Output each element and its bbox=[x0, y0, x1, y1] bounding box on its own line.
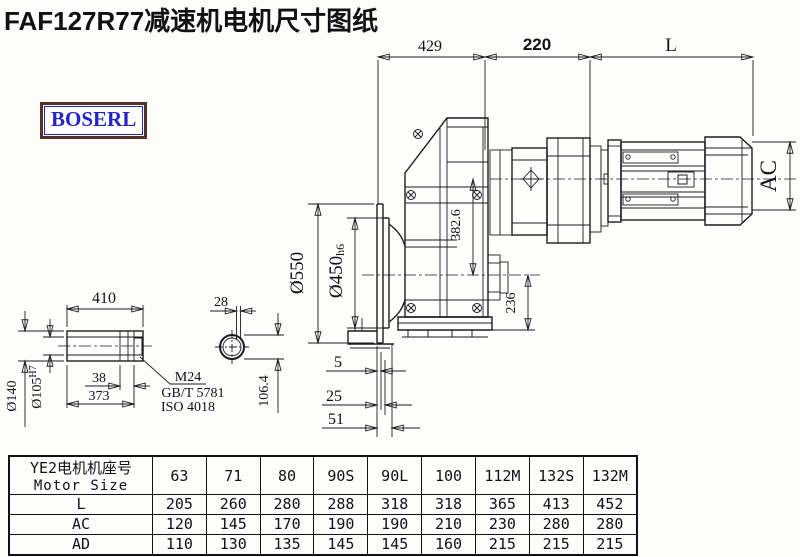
table-cell: 288 bbox=[314, 495, 368, 515]
table-cell: 160 bbox=[422, 534, 476, 555]
header-cn: YE2电机机座号 bbox=[10, 457, 152, 478]
table-cell: 80 bbox=[260, 456, 314, 495]
dim-220: 220 bbox=[523, 35, 551, 54]
table-cell: 452 bbox=[583, 495, 637, 515]
table-cell: 260 bbox=[206, 495, 260, 515]
table-cell: 190 bbox=[368, 514, 422, 534]
table-row: AC 120 145 170 190 190 210 230 280 280 bbox=[9, 514, 637, 534]
dim-flange-diameters: Ø550 Ø450h6 bbox=[287, 204, 386, 343]
table-cell: 90L bbox=[368, 456, 422, 495]
row-label: L bbox=[9, 495, 153, 515]
svg-text:Ø140: Ø140 bbox=[5, 380, 20, 411]
svg-text:38: 38 bbox=[92, 371, 106, 386]
table-row: AD 110 130 135 145 145 160 215 215 215 bbox=[9, 534, 637, 555]
svg-text:GB/T 5781: GB/T 5781 bbox=[161, 386, 224, 401]
table-row: L 205 260 280 288 318 318 365 413 452 bbox=[9, 495, 637, 515]
dim-AC: AC bbox=[752, 142, 796, 210]
table-cell: 170 bbox=[260, 514, 314, 534]
dim-L: L bbox=[665, 35, 677, 56]
svg-text:410: 410 bbox=[92, 290, 116, 307]
table-cell: 71 bbox=[206, 456, 260, 495]
table-cell: 413 bbox=[529, 495, 583, 515]
svg-text:25: 25 bbox=[326, 388, 342, 405]
table-cell: 215 bbox=[475, 534, 529, 555]
table-cell: 215 bbox=[583, 534, 637, 555]
svg-text:ISO 4018: ISO 4018 bbox=[161, 400, 215, 415]
table-cell: 215 bbox=[529, 534, 583, 555]
table-cell: 132M bbox=[583, 456, 637, 495]
table-cell: 210 bbox=[422, 514, 476, 534]
svg-text:Ø550: Ø550 bbox=[287, 252, 308, 294]
table-cell: 145 bbox=[206, 514, 260, 534]
r77-gear-stage bbox=[490, 138, 608, 243]
brand-logo-text: BOSERL bbox=[44, 106, 143, 135]
svg-text:236: 236 bbox=[504, 293, 519, 314]
table-cell: 145 bbox=[368, 534, 422, 555]
hollow-shaft-detail: 410 38 373 M24 GB/T 5781 ISO 4018 Ø140 bbox=[5, 290, 225, 427]
technical-drawing: 429 220 L bbox=[0, 0, 800, 455]
table-cell: 100 bbox=[422, 456, 476, 495]
table-cell: 205 bbox=[153, 495, 207, 515]
table-cell: 120 bbox=[153, 514, 207, 534]
table-header-row: YE2电机机座号 Motor Size 63 71 80 90S 90L 100… bbox=[9, 456, 637, 495]
motor-size-table: YE2电机机座号 Motor Size 63 71 80 90S 90L 100… bbox=[8, 455, 638, 556]
table-cell: 318 bbox=[368, 495, 422, 515]
table-cell: 135 bbox=[260, 534, 314, 555]
table-cell: 132S bbox=[529, 456, 583, 495]
table-cell: 318 bbox=[422, 495, 476, 515]
svg-text:106.4: 106.4 bbox=[257, 375, 272, 407]
table-cell: 110 bbox=[153, 534, 207, 555]
table-cell: 280 bbox=[260, 495, 314, 515]
dim-382: 382.6 bbox=[449, 179, 473, 275]
svg-text:382.6: 382.6 bbox=[449, 209, 464, 241]
electric-motor bbox=[604, 137, 752, 225]
row-label: AD bbox=[9, 534, 153, 555]
table-cell: 145 bbox=[314, 534, 368, 555]
dim-offsets: 5 25 51 bbox=[322, 344, 420, 437]
table-cell: 365 bbox=[475, 495, 529, 515]
dim-236: 236 bbox=[492, 275, 535, 330]
table-cell: 280 bbox=[583, 514, 637, 534]
svg-text:AC: AC bbox=[756, 160, 781, 192]
svg-text:373: 373 bbox=[89, 389, 110, 404]
svg-text:28: 28 bbox=[214, 295, 228, 310]
brand-logo: BOSERL bbox=[40, 102, 147, 139]
drawing-sheet: 429 220 L bbox=[0, 0, 800, 557]
svg-text:5: 5 bbox=[334, 354, 342, 371]
page-title: FAF127R77减速机电机尺寸图纸 bbox=[4, 1, 378, 38]
row-label: AC bbox=[9, 514, 153, 534]
table-cell: 112M bbox=[475, 456, 529, 495]
svg-text:Ø450h6: Ø450h6 bbox=[326, 244, 347, 298]
table-cell: 230 bbox=[475, 514, 529, 534]
svg-text:M24: M24 bbox=[175, 370, 201, 385]
dim-429: 429 bbox=[418, 38, 442, 55]
svg-text:51: 51 bbox=[328, 411, 344, 428]
table-cell: 190 bbox=[314, 514, 368, 534]
table-cell: 90S bbox=[314, 456, 368, 495]
table-cell: 280 bbox=[529, 514, 583, 534]
table-header-motor-size: YE2电机机座号 Motor Size bbox=[9, 456, 153, 495]
svg-text:Ø105H7: Ø105H7 bbox=[28, 365, 45, 408]
table-cell: 63 bbox=[153, 456, 207, 495]
output-flange bbox=[348, 204, 405, 348]
table-cell: 130 bbox=[206, 534, 260, 555]
header-en: Motor Size bbox=[10, 478, 152, 494]
